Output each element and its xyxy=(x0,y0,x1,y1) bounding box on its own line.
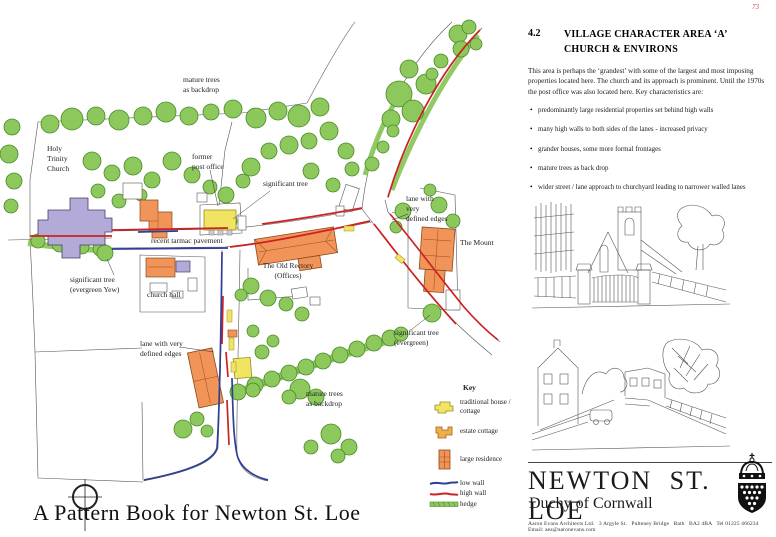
hedge-icon xyxy=(428,500,460,508)
map-label-evergreen: significant tree (evergreen) xyxy=(394,328,439,348)
map-label-lane-defined-lower: lane with very defined edges xyxy=(140,339,183,359)
key-item-traditional-house: traditional house / cottage xyxy=(428,398,520,416)
section-heading: 4.2 VILLAGE CHARACTER AREA ‘A’ CHURCH & … xyxy=(528,28,774,57)
key-item-high-wall: high wall xyxy=(428,489,520,498)
church-gate-sketch xyxy=(530,198,734,328)
map-label-old-rectory: The Old Rectory (Offices) xyxy=(248,261,328,281)
key-item-estate-cottage: estate cottage xyxy=(428,423,520,441)
bullet-marker: • xyxy=(528,125,538,135)
list-item: •many high walls to both sides of the la… xyxy=(528,125,766,135)
bullet-marker: • xyxy=(528,106,538,116)
key-label: low wall xyxy=(460,479,484,488)
architect-footer: Aaron Evans Architects Ltd. 3 Argyle St.… xyxy=(528,521,774,533)
section-title-line2: CHURCH & ENVIRONS xyxy=(564,43,728,58)
key-item-large-residence: large residence xyxy=(428,448,520,472)
page-title: A Pattern Book for Newton St. Loe xyxy=(33,500,361,526)
list-item: •mature trees as back drop xyxy=(528,164,766,174)
key-label: hedge xyxy=(460,500,477,509)
list-item: •grander houses, some more formal fronta… xyxy=(528,145,766,155)
pattern-book-page: mature trees as backdrop Holy Trinity Ch… xyxy=(0,0,776,537)
street-scene-sketch xyxy=(530,334,734,458)
list-item: •predominantly large residential propert… xyxy=(528,106,766,116)
bullet-text: grander houses, some more formal frontag… xyxy=(538,145,661,155)
characteristics-list: •predominantly large residential propert… xyxy=(528,106,774,211)
section-intro: This area is perhaps the ‘grandest’ with… xyxy=(528,66,766,97)
key-label: large residence xyxy=(460,455,502,464)
large-residence-icon xyxy=(428,448,460,472)
bullet-text: mature trees as back drop xyxy=(538,164,608,174)
section-number: 4.2 xyxy=(528,28,564,57)
bullet-text: predominantly large residential properti… xyxy=(538,106,713,116)
key-title: Key xyxy=(463,383,520,392)
key-item-hedge: hedge xyxy=(428,500,520,509)
high-wall-icon xyxy=(428,490,460,498)
key-label: traditional house / cottage xyxy=(460,398,511,416)
map-label-holy-trinity-church: Holy Trinity Church xyxy=(47,144,69,173)
text-panel: 4.2 VILLAGE CHARACTER AREA ‘A’ CHURCH & … xyxy=(528,0,774,537)
section-title-line1: VILLAGE CHARACTER AREA ‘A’ xyxy=(564,28,728,43)
bullet-marker: • xyxy=(528,164,538,174)
bullet-text: wider street / lane approach to churchya… xyxy=(538,183,746,193)
map-label-lane-defined-upper: lane with very defined edges xyxy=(406,194,447,223)
map-key: Key traditional house / cottage estate c… xyxy=(428,383,520,511)
list-item: •wider street / lane approach to churchy… xyxy=(528,183,766,193)
bullet-marker: • xyxy=(528,183,538,193)
map-label-former-post-office: former post office xyxy=(192,152,224,172)
bullet-marker: • xyxy=(528,145,538,155)
village-map: mature trees as backdrop Holy Trinity Ch… xyxy=(0,0,520,537)
map-label-church-hall: church hall xyxy=(147,290,181,300)
brand-subtitle: Duchy of Cornwall xyxy=(529,495,653,513)
map-label-mature-trees-top: mature trees as backdrop xyxy=(183,75,220,95)
estate-cottage-icon xyxy=(428,423,460,441)
duchy-crest-icon xyxy=(732,452,772,514)
page-number: 73 xyxy=(752,3,759,11)
bullet-text: many high walls to both sides of the lan… xyxy=(538,125,708,135)
key-label: high wall xyxy=(460,489,486,498)
map-label-tarmac-pavement: recent tarmac pavement xyxy=(151,236,223,246)
low-wall-icon xyxy=(428,479,460,487)
key-item-low-wall: low wall xyxy=(428,479,520,488)
map-label-evergreen-yew: significant tree (evergreen Yew) xyxy=(70,275,119,295)
key-label: estate cottage xyxy=(460,427,498,436)
map-label-the-mount: The Mount xyxy=(460,238,494,248)
traditional-house-icon xyxy=(428,399,460,415)
map-label-mature-trees-bottom: mature trees as backdrop xyxy=(306,389,343,409)
map-label-significant-tree: significant tree xyxy=(263,179,308,189)
